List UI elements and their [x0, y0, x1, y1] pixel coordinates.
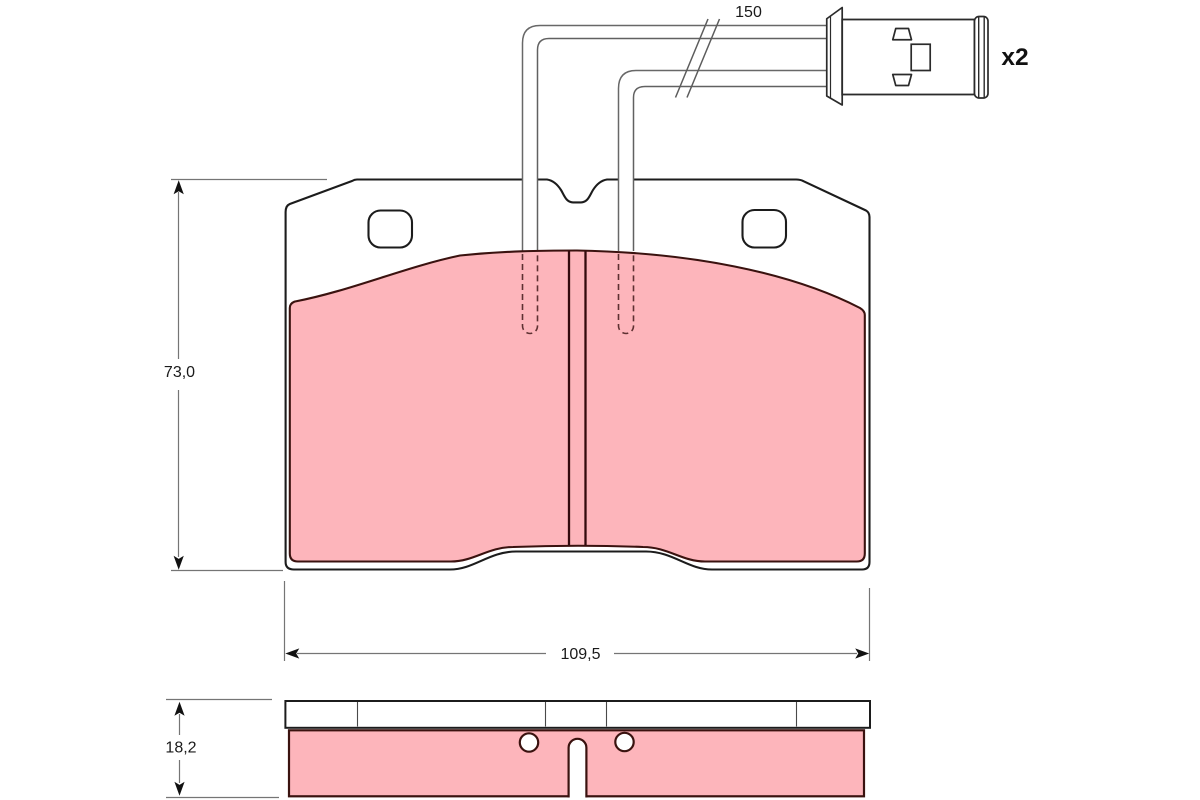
svg-text:109,5: 109,5: [560, 646, 600, 663]
svg-text:73,0: 73,0: [164, 364, 195, 381]
svg-text:150: 150: [735, 4, 762, 21]
svg-text:18,2: 18,2: [165, 740, 196, 757]
svg-text:x2: x2: [1001, 44, 1028, 71]
